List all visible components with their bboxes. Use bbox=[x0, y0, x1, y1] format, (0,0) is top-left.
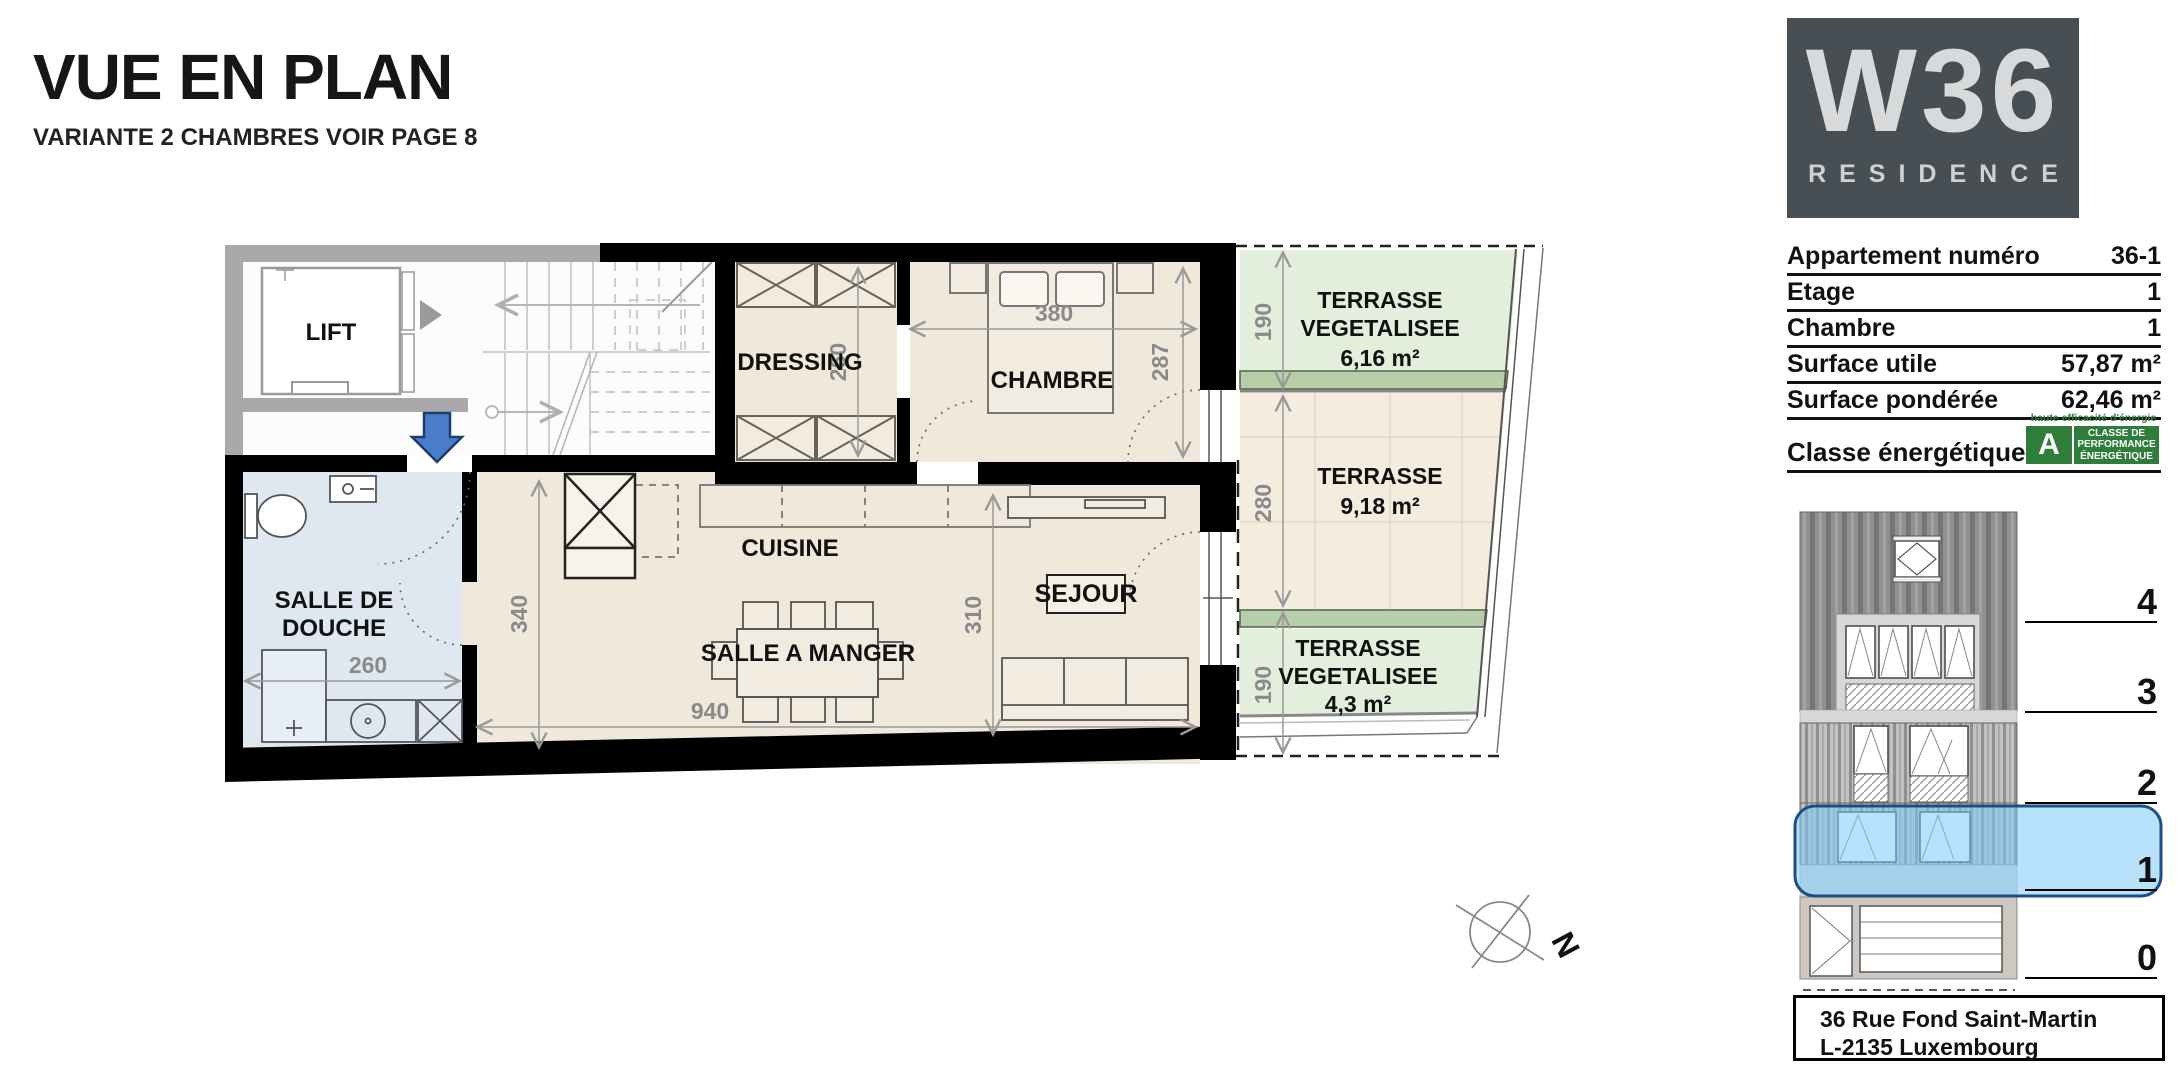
dim-douche-width: 260 bbox=[349, 652, 387, 678]
table-row: Chambre 1 bbox=[1787, 312, 2161, 348]
energy-class-row: Classe énergétique haute efficacité d'én… bbox=[1787, 412, 2161, 473]
table-row: Etage 1 bbox=[1787, 276, 2161, 312]
info-label: Appartement numéro bbox=[1787, 242, 2040, 271]
attic-window bbox=[1895, 541, 1939, 577]
info-value: 1 bbox=[2147, 278, 2161, 307]
building-elevation: 4 3 2 1 0 bbox=[1795, 512, 2161, 990]
address-line1: 36 Rue Fond Saint-Martin bbox=[1820, 1005, 2162, 1033]
dim-sejour-height: 310 bbox=[960, 596, 986, 634]
terrace-mid-area: 9,18 m² bbox=[1340, 493, 1420, 519]
energy-tagline: haute efficacité d'énergie bbox=[2026, 412, 2161, 424]
info-label: Surface pondérée bbox=[1787, 386, 1998, 415]
terrace-bot-line1: TERRASSE bbox=[1295, 635, 1420, 661]
room-label-dressing: DRESSING bbox=[737, 349, 862, 376]
address-box: 36 Rue Fond Saint-Martin L-2135 Luxembou… bbox=[1793, 995, 2165, 1061]
residence-logo: W36 RESIDENCE bbox=[1787, 18, 2079, 218]
room-label-chambre: CHAMBRE bbox=[991, 367, 1114, 394]
info-label: Chambre bbox=[1787, 314, 1895, 343]
room-label-douche-2: DOUCHE bbox=[282, 615, 386, 642]
table-row: Surface utile 57,87 m² bbox=[1787, 348, 2161, 384]
terrace-mid-line1: TERRASSE bbox=[1317, 463, 1442, 489]
room-label-douche-1: SALLE DE bbox=[275, 587, 394, 614]
floor-label-1: 1 bbox=[2137, 849, 2157, 890]
info-value: 36-1 bbox=[2111, 242, 2161, 271]
apartment-info-table: Appartement numéro 36-1 Etage 1 Chambre … bbox=[1787, 240, 2161, 420]
energy-badge-text: CLASSE DE PERFORMANCE ÉNERGÉTIQUE bbox=[2074, 426, 2159, 464]
dim-chambre-width: 380 bbox=[1035, 300, 1073, 326]
room-label-lift: LIFT bbox=[306, 319, 357, 346]
energy-label: Classe énergétique bbox=[1787, 437, 2025, 468]
page: 380 287 260 340 310 940 260 190 280 190 … bbox=[0, 0, 2178, 1080]
info-label: Surface utile bbox=[1787, 350, 1937, 379]
dim-terrace-mid: 280 bbox=[1250, 484, 1276, 522]
floor-1-highlight[interactable] bbox=[1795, 806, 2161, 896]
table-row: Appartement numéro 36-1 bbox=[1787, 240, 2161, 276]
page-subtitle: VARIANTE 2 CHAMBRES VOIR PAGE 8 bbox=[33, 124, 478, 152]
info-value: 57,87 m² bbox=[2061, 350, 2161, 379]
shaft bbox=[565, 474, 635, 578]
floor-label-0: 0 bbox=[2137, 937, 2157, 978]
dim-living-width: 940 bbox=[691, 698, 729, 724]
dim-terrace-top: 190 bbox=[1250, 303, 1276, 341]
energy-badge: haute efficacité d'énergie A CLASSE DE P… bbox=[2026, 412, 2161, 464]
garage-door bbox=[1860, 906, 2002, 972]
compass-north-label: N bbox=[1544, 926, 1587, 963]
room-label-cuisine: CUISINE bbox=[741, 535, 838, 562]
terrace-bot-line2: VEGETALISEE bbox=[1278, 663, 1437, 689]
floor-label-4: 4 bbox=[2137, 581, 2157, 622]
dim-terrace-bottom: 190 bbox=[1250, 666, 1276, 704]
page-title: VUE EN PLAN bbox=[33, 40, 478, 114]
floor-label-3: 3 bbox=[2137, 671, 2157, 712]
dim-living-height: 340 bbox=[506, 595, 532, 633]
title-block: VUE EN PLAN VARIANTE 2 CHAMBRES VOIR PAG… bbox=[33, 40, 478, 152]
info-value: 1 bbox=[2147, 314, 2161, 343]
terrace-top-line2: VEGETALISEE bbox=[1300, 315, 1459, 341]
address-line2: L-2135 Luxembourg bbox=[1820, 1033, 2162, 1061]
entry-door bbox=[1810, 906, 1852, 976]
terrace-top-area: 6,16 m² bbox=[1340, 345, 1420, 371]
terrace-bot-area: 4,3 m² bbox=[1325, 691, 1392, 717]
terrace-top-line1: TERRASSE bbox=[1317, 287, 1442, 313]
info-label: Etage bbox=[1787, 278, 1855, 307]
dim-chambre-height: 287 bbox=[1147, 343, 1173, 381]
logo-main-text: W36 bbox=[1787, 22, 2079, 160]
room-label-sejour: SEJOUR bbox=[1035, 580, 1138, 608]
compass-icon: N bbox=[1456, 895, 1587, 968]
logo-sub-text: RESIDENCE bbox=[1800, 160, 2079, 189]
energy-grade: A bbox=[2026, 426, 2072, 464]
floor-label-2: 2 bbox=[2137, 762, 2157, 803]
info-value: 62,46 m² bbox=[2061, 386, 2161, 415]
room-label-salle-a-manger: SALLE A MANGER bbox=[701, 640, 915, 667]
